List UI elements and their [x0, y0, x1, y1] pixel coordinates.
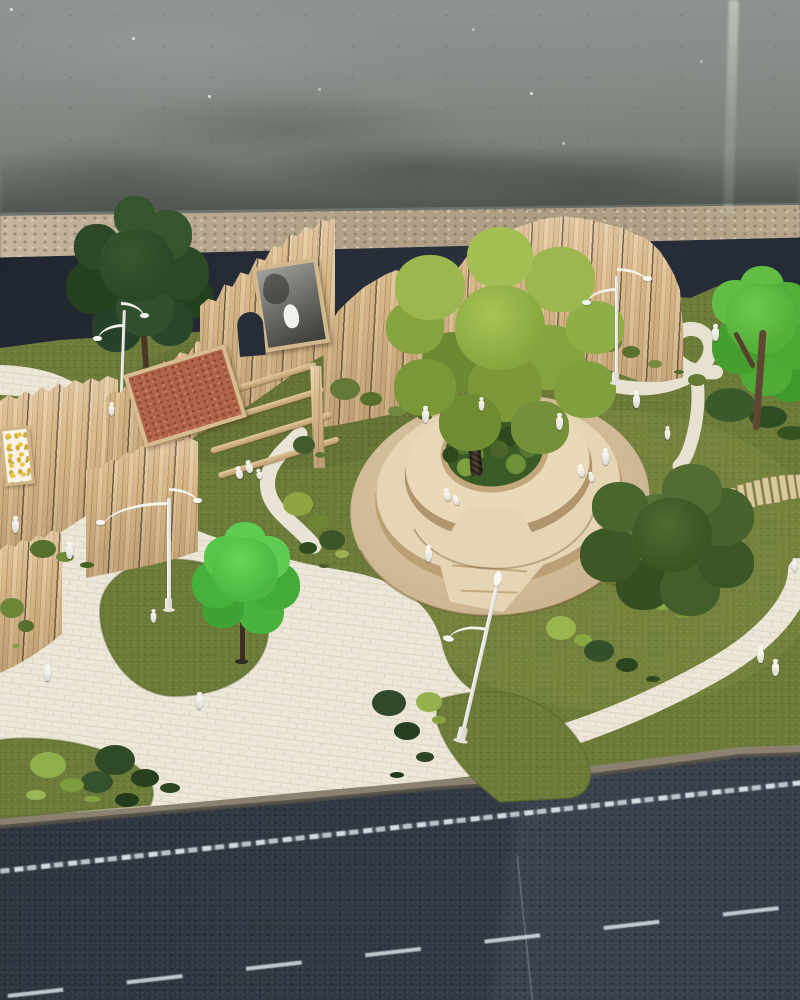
- central-tree-canopy: [455, 285, 545, 370]
- lamp-head: [93, 336, 102, 341]
- miniature-figure: [151, 612, 157, 622]
- lamp-arm: [169, 488, 199, 506]
- miniature-figure: [665, 429, 671, 439]
- dark-tree-canopy-right: [632, 498, 712, 572]
- lamp-head: [96, 520, 105, 525]
- miniature-figure: [479, 400, 485, 410]
- architectural-model-photo: Photograph of a physical architectural s…: [0, 0, 800, 1000]
- moss-clump-right-light: [546, 616, 576, 640]
- moss-under-dark-tree: [648, 588, 676, 610]
- fence-arch-opening: [236, 311, 266, 357]
- lamp-base-plate: [610, 381, 622, 385]
- miniature-figure: [196, 696, 203, 709]
- miniature-figure: [602, 452, 609, 465]
- miniature-figure: [757, 650, 764, 663]
- lamp-base-plate: [453, 737, 469, 744]
- lamp-head: [492, 570, 503, 586]
- miniature-figure: [422, 410, 429, 423]
- miniature-figure: [772, 663, 779, 676]
- bush-under-right-tree: [705, 388, 755, 422]
- lamp-head: [193, 498, 202, 503]
- bush-bottom-left-dark: [95, 745, 135, 775]
- miniature-figure: [44, 668, 51, 681]
- miniature-figure: [425, 549, 432, 562]
- miniature-figure: [633, 395, 640, 408]
- moss-clump-gate: [293, 436, 315, 454]
- lamp-head: [582, 300, 591, 305]
- miniature-figure: [12, 520, 19, 533]
- lamp-head: [643, 276, 652, 281]
- lamp-arm: [102, 502, 168, 529]
- lamp-head: [140, 313, 149, 318]
- miniature-figure: [556, 417, 563, 430]
- moss-cluster-center: [283, 492, 313, 516]
- moss-row-fence-base-left: [330, 378, 360, 400]
- moss-left-edge: [0, 598, 24, 618]
- bright-tree-canopy-left: [212, 538, 278, 602]
- lamp-pole: [460, 585, 499, 740]
- miniature-figure: [792, 561, 798, 571]
- street-lamp-upper-right: [578, 262, 688, 387]
- miniature-figure: [109, 405, 115, 415]
- miniature-figure: [66, 546, 73, 559]
- moss-row-right-dark: [584, 640, 614, 662]
- yellow-botanical-panel: [0, 426, 35, 487]
- bright-tree-trunk-left: [240, 618, 245, 664]
- photo-dark-shape: [261, 272, 291, 306]
- bush-bottom-center-dark: [372, 690, 406, 716]
- moss-bottom-left-light: [30, 752, 66, 778]
- lamp-base-plate: [163, 608, 175, 612]
- bright-tree-base-left: [235, 659, 248, 664]
- miniature-figure: [712, 328, 719, 341]
- white-cat-figure: [282, 303, 301, 329]
- street-lamp-plaza: [90, 480, 210, 615]
- moss-fence-base-far-left: [30, 540, 56, 558]
